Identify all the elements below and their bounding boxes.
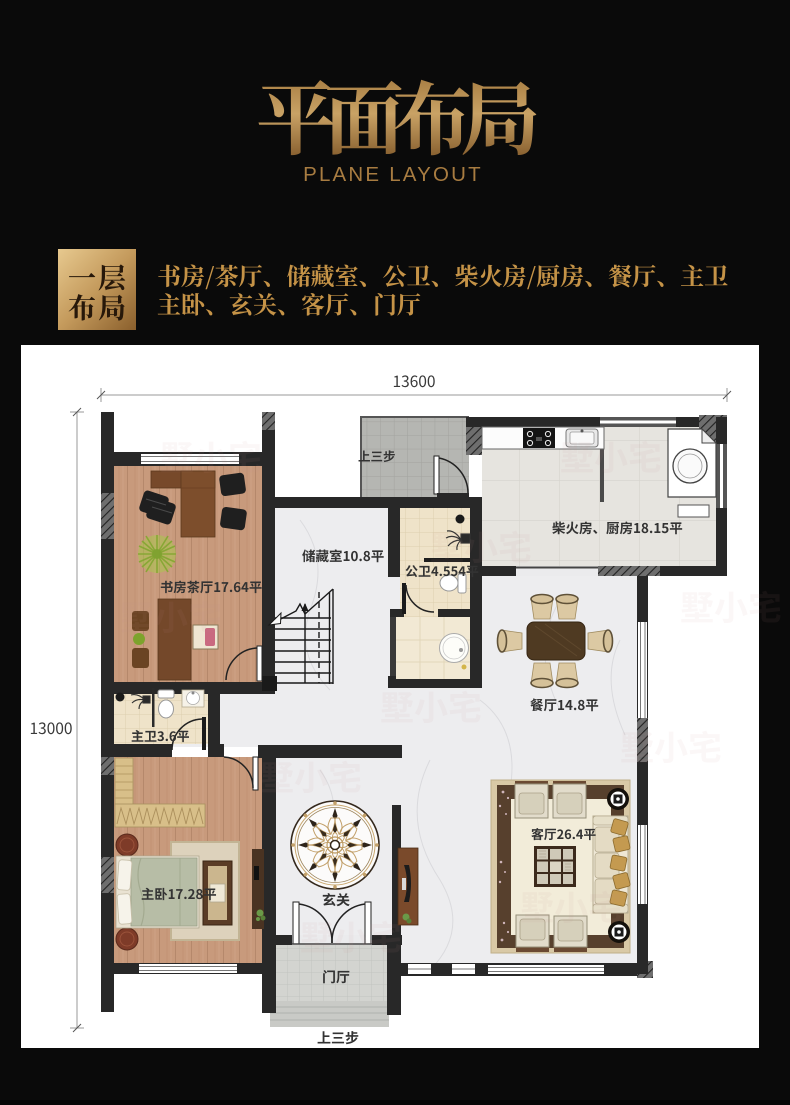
svg-text:PLANE LAYOUT: PLANE LAYOUT <box>303 163 483 186</box>
